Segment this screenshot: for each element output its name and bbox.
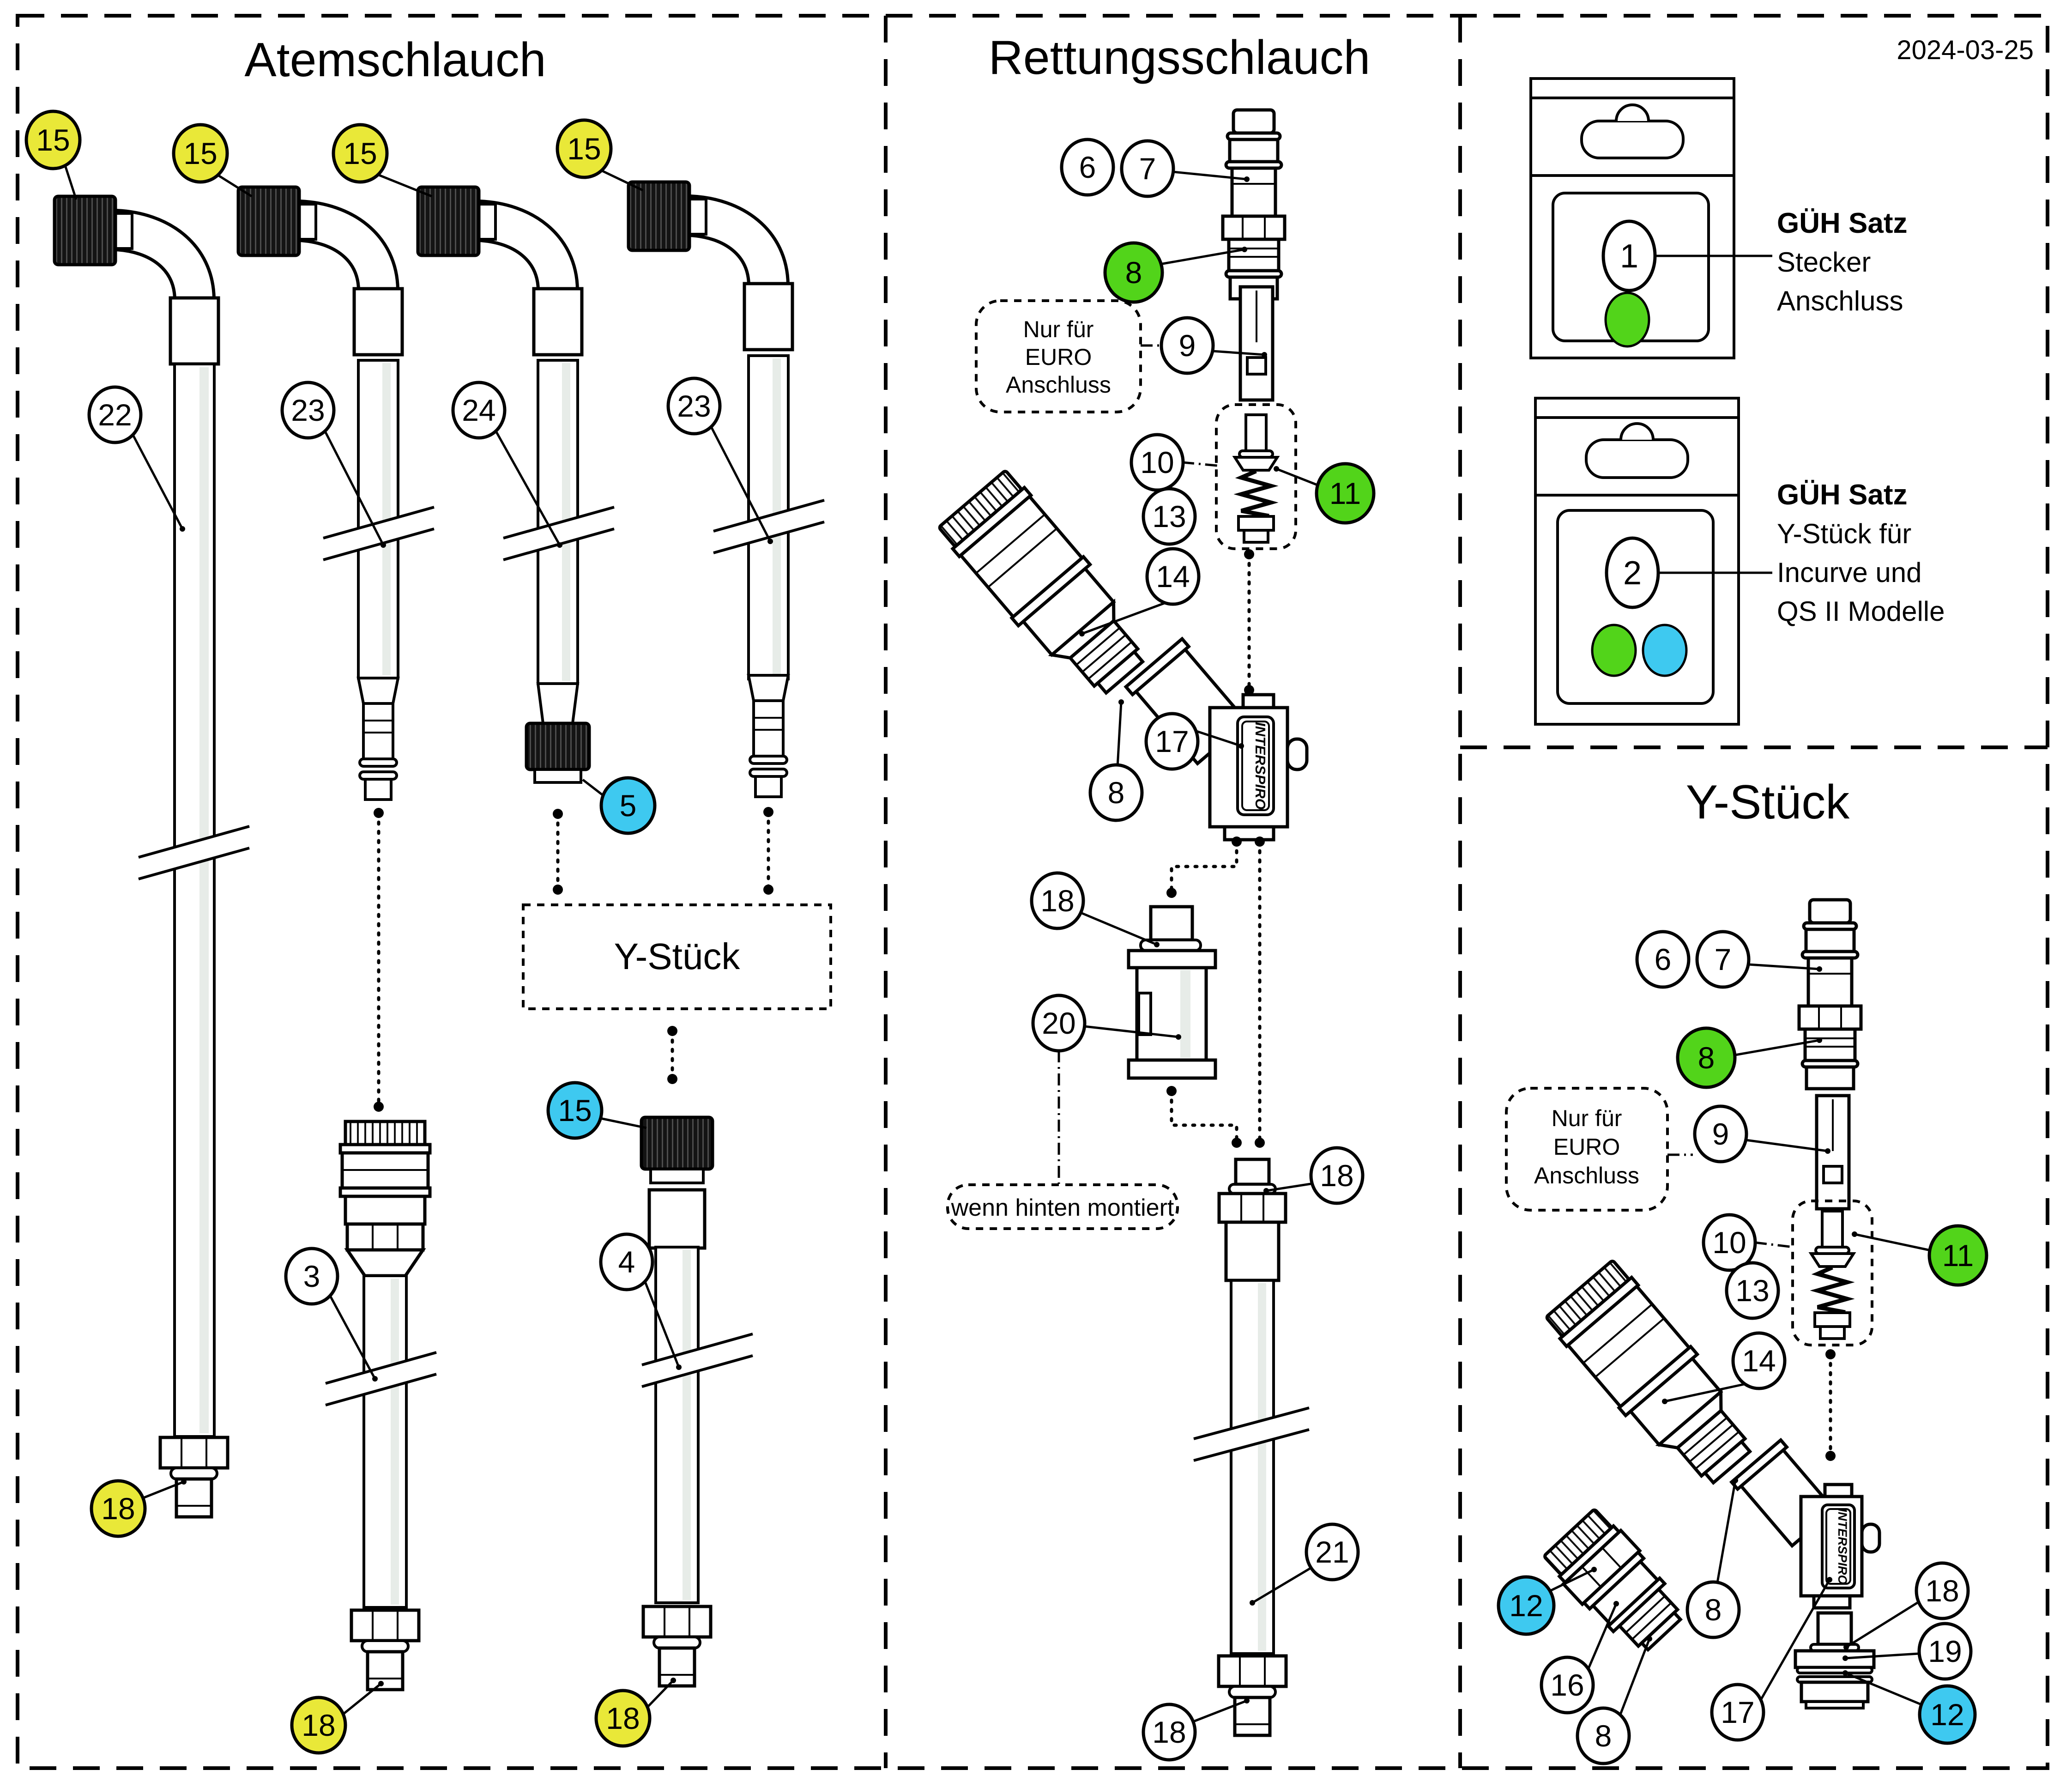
y-piece-2: INTERSPIRO bbox=[1732, 1440, 1879, 1608]
callout-8b: 8 bbox=[1090, 765, 1142, 820]
svg-text:5: 5 bbox=[620, 788, 637, 823]
callout-9: 9 bbox=[1161, 318, 1213, 373]
callout-8-green: 8 bbox=[1105, 243, 1162, 302]
svg-text:8: 8 bbox=[1698, 1041, 1715, 1075]
callout-21: 21 bbox=[1306, 1524, 1358, 1580]
svg-text:15: 15 bbox=[36, 123, 70, 157]
callout-y8-green: 8 bbox=[1678, 1028, 1735, 1087]
callout-15-cyan: 15 bbox=[548, 1083, 602, 1138]
callout-y12-cyan-left: 12 bbox=[1498, 1577, 1554, 1634]
callout-24: 24 bbox=[453, 382, 505, 438]
callout-14: 14 bbox=[1147, 549, 1199, 604]
svg-text:23: 23 bbox=[291, 393, 325, 427]
dot-green bbox=[1606, 293, 1649, 346]
section-packages: 1 GÜH Satz Stecker Anschluss 2 GÜH Satz … bbox=[1531, 79, 1945, 724]
svg-text:13: 13 bbox=[1735, 1273, 1769, 1308]
hose-23-right bbox=[628, 182, 824, 797]
dot-green-2 bbox=[1592, 625, 1636, 676]
hose-4 bbox=[641, 1117, 753, 1686]
package-2-line2: Incurve und bbox=[1777, 557, 1922, 588]
callout-y19: 19 bbox=[1919, 1624, 1971, 1679]
svg-text:18: 18 bbox=[606, 1701, 640, 1735]
callout-y14: 14 bbox=[1733, 1333, 1785, 1388]
svg-text:17: 17 bbox=[1721, 1695, 1754, 1729]
section-y-stueck: Y-Stück Nur für EURO Anschluss INTERSPIR… bbox=[1498, 776, 1987, 1764]
callout-5: 5 bbox=[601, 778, 655, 833]
svg-text:18: 18 bbox=[1320, 1158, 1353, 1193]
rear-mount-note: wenn hinten montiert bbox=[951, 1194, 1174, 1221]
callout-20: 20 bbox=[1033, 995, 1085, 1051]
callout-18-1: 18 bbox=[91, 1481, 145, 1536]
callout-y9: 9 bbox=[1695, 1106, 1746, 1162]
parts-diagram: 2024-03-25 Atemschlauch bbox=[0, 0, 2072, 1788]
svg-text:4: 4 bbox=[618, 1245, 635, 1279]
callout-15-1: 15 bbox=[26, 111, 80, 169]
connector-18-19-12 bbox=[1795, 1613, 1874, 1708]
callout-18b: 18 bbox=[1311, 1148, 1363, 1203]
svg-text:7: 7 bbox=[1139, 152, 1156, 186]
callout-y13: 13 bbox=[1727, 1263, 1778, 1318]
interspiro-brand: INTERSPIRO bbox=[1252, 722, 1269, 809]
svg-text:16: 16 bbox=[1550, 1668, 1584, 1702]
svg-text:19: 19 bbox=[1928, 1634, 1962, 1668]
package-2-title: GÜH Satz bbox=[1777, 479, 1907, 511]
package-1-line1: Stecker bbox=[1777, 247, 1871, 278]
callout-y6: 6 bbox=[1637, 932, 1689, 987]
svg-text:14: 14 bbox=[1742, 1344, 1776, 1378]
coupler-hose-3 bbox=[326, 1121, 436, 1690]
svg-text:10: 10 bbox=[1140, 445, 1174, 479]
callout-15-2: 15 bbox=[174, 125, 227, 182]
svg-text:6: 6 bbox=[1079, 150, 1096, 184]
euro-adapter-tube bbox=[1240, 287, 1273, 400]
svg-text:18: 18 bbox=[1152, 1715, 1186, 1749]
section-title-y-stueck: Y-Stück bbox=[1686, 776, 1850, 829]
svg-text:13: 13 bbox=[1152, 499, 1186, 533]
svg-text:21: 21 bbox=[1315, 1535, 1349, 1569]
svg-text:22: 22 bbox=[98, 398, 132, 432]
package-1-line2: Anschluss bbox=[1777, 285, 1903, 316]
euro-note-line3: Anschluss bbox=[1006, 372, 1111, 398]
hose-21 bbox=[1194, 1159, 1309, 1735]
y-stueck-box-label: Y-Stück bbox=[614, 936, 741, 977]
euro-note-y-line3: Anschluss bbox=[1534, 1163, 1639, 1188]
svg-text:18: 18 bbox=[101, 1491, 135, 1526]
callout-y17: 17 bbox=[1712, 1685, 1764, 1740]
callout-23-right: 23 bbox=[668, 378, 720, 434]
svg-text:11: 11 bbox=[1942, 1238, 1974, 1273]
section-rettungsschlauch: Rettungsschlauch Nur für EURO Anschluss … bbox=[936, 31, 1374, 1760]
svg-text:24: 24 bbox=[462, 393, 495, 427]
section-title-rettungsschlauch: Rettungsschlauch bbox=[989, 31, 1371, 85]
callout-4: 4 bbox=[601, 1234, 652, 1290]
plug-connector-y bbox=[1799, 900, 1861, 1089]
callout-7: 7 bbox=[1122, 141, 1173, 196]
euro-note-y-line1: Nur für bbox=[1552, 1105, 1622, 1131]
svg-text:8: 8 bbox=[1125, 255, 1142, 290]
callout-18c: 18 bbox=[1143, 1704, 1195, 1760]
svg-text:9: 9 bbox=[1712, 1117, 1729, 1151]
svg-text:17: 17 bbox=[1155, 724, 1189, 758]
callout-y7: 7 bbox=[1697, 932, 1749, 987]
svg-text:8: 8 bbox=[1595, 1719, 1612, 1753]
hose-24 bbox=[418, 187, 614, 782]
svg-text:15: 15 bbox=[343, 136, 377, 170]
valve-cartridge-y bbox=[1811, 1211, 1854, 1339]
diagram-page: 2024-03-25 Atemschlauch bbox=[0, 0, 2072, 1788]
hose-23-left bbox=[238, 187, 434, 800]
callout-y8b: 8 bbox=[1577, 1708, 1629, 1764]
callout-package-1: 1 bbox=[1603, 221, 1655, 291]
callout-y18: 18 bbox=[1916, 1563, 1968, 1618]
adapter-20 bbox=[1129, 907, 1215, 1078]
euro-adapter-tube-y bbox=[1817, 1096, 1849, 1209]
svg-text:15: 15 bbox=[183, 136, 217, 170]
callout-11-green: 11 bbox=[1317, 464, 1374, 523]
svg-text:3: 3 bbox=[303, 1259, 320, 1293]
svg-text:14: 14 bbox=[1156, 559, 1190, 594]
svg-text:9: 9 bbox=[1179, 328, 1196, 363]
female-coupler bbox=[936, 468, 1160, 708]
euro-note-y-line2: EURO bbox=[1553, 1134, 1620, 1160]
plug-connector bbox=[1223, 110, 1285, 299]
package-2-line3: QS II Modelle bbox=[1777, 596, 1945, 627]
svg-text:18: 18 bbox=[1040, 884, 1074, 918]
callout-y12-cyan-bottom: 12 bbox=[1920, 1686, 1975, 1743]
package-1-title: GÜH Satz bbox=[1777, 207, 1907, 239]
valve-cartridge bbox=[1235, 415, 1277, 542]
callout-y16: 16 bbox=[1541, 1657, 1593, 1713]
svg-text:15: 15 bbox=[567, 132, 601, 166]
dotted-y-to-adapter bbox=[1172, 842, 1237, 893]
callout-package-2: 2 bbox=[1607, 538, 1658, 607]
package-2: 2 GÜH Satz Y-Stück für Incurve und QS II… bbox=[1535, 398, 1945, 724]
svg-text:15: 15 bbox=[558, 1093, 592, 1127]
package-2-line1: Y-Stück für bbox=[1777, 518, 1911, 549]
callout-15-3: 15 bbox=[333, 125, 387, 182]
callout-10: 10 bbox=[1131, 435, 1183, 490]
euro-note-line2: EURO bbox=[1025, 344, 1092, 370]
package-1: 1 GÜH Satz Stecker Anschluss bbox=[1531, 79, 1907, 358]
dotted-adapter-to-hose bbox=[1172, 1091, 1237, 1143]
callout-15-4: 15 bbox=[557, 120, 611, 177]
euro-note-line1: Nur für bbox=[1023, 316, 1094, 342]
svg-text:6: 6 bbox=[1655, 942, 1672, 976]
callout-22: 22 bbox=[89, 387, 141, 442]
svg-text:12: 12 bbox=[1930, 1697, 1964, 1732]
callout-17: 17 bbox=[1146, 714, 1198, 769]
svg-text:2: 2 bbox=[1623, 555, 1642, 592]
callout-6: 6 bbox=[1062, 139, 1113, 195]
svg-text:18: 18 bbox=[1925, 1574, 1959, 1608]
section-atemschlauch: Atemschlauch bbox=[26, 33, 831, 1753]
callout-18-3: 18 bbox=[596, 1691, 650, 1746]
callout-18a: 18 bbox=[1032, 873, 1083, 928]
callout-3: 3 bbox=[286, 1249, 338, 1304]
svg-text:23: 23 bbox=[677, 389, 711, 423]
svg-text:11: 11 bbox=[1329, 476, 1361, 510]
callout-y8c: 8 bbox=[1687, 1582, 1739, 1637]
svg-text:1: 1 bbox=[1620, 238, 1638, 275]
callout-23-left: 23 bbox=[282, 382, 334, 438]
revision-date: 2024-03-25 bbox=[1897, 35, 2034, 65]
svg-text:18: 18 bbox=[302, 1708, 335, 1742]
svg-text:7: 7 bbox=[1715, 942, 1732, 976]
hose-22 bbox=[54, 196, 249, 1517]
svg-text:12: 12 bbox=[1509, 1588, 1543, 1623]
callout-13: 13 bbox=[1143, 489, 1195, 544]
dot-cyan bbox=[1643, 625, 1686, 676]
callout-18-2: 18 bbox=[292, 1697, 345, 1753]
section-title-atemschlauch: Atemschlauch bbox=[244, 33, 546, 87]
callout-y11-green: 11 bbox=[1929, 1226, 1987, 1285]
interspiro-brand-2: INTERSPIRO bbox=[1836, 1508, 1849, 1584]
svg-text:20: 20 bbox=[1042, 1006, 1075, 1040]
svg-text:10: 10 bbox=[1712, 1225, 1746, 1260]
svg-text:8: 8 bbox=[1705, 1593, 1722, 1627]
svg-text:8: 8 bbox=[1108, 776, 1125, 810]
